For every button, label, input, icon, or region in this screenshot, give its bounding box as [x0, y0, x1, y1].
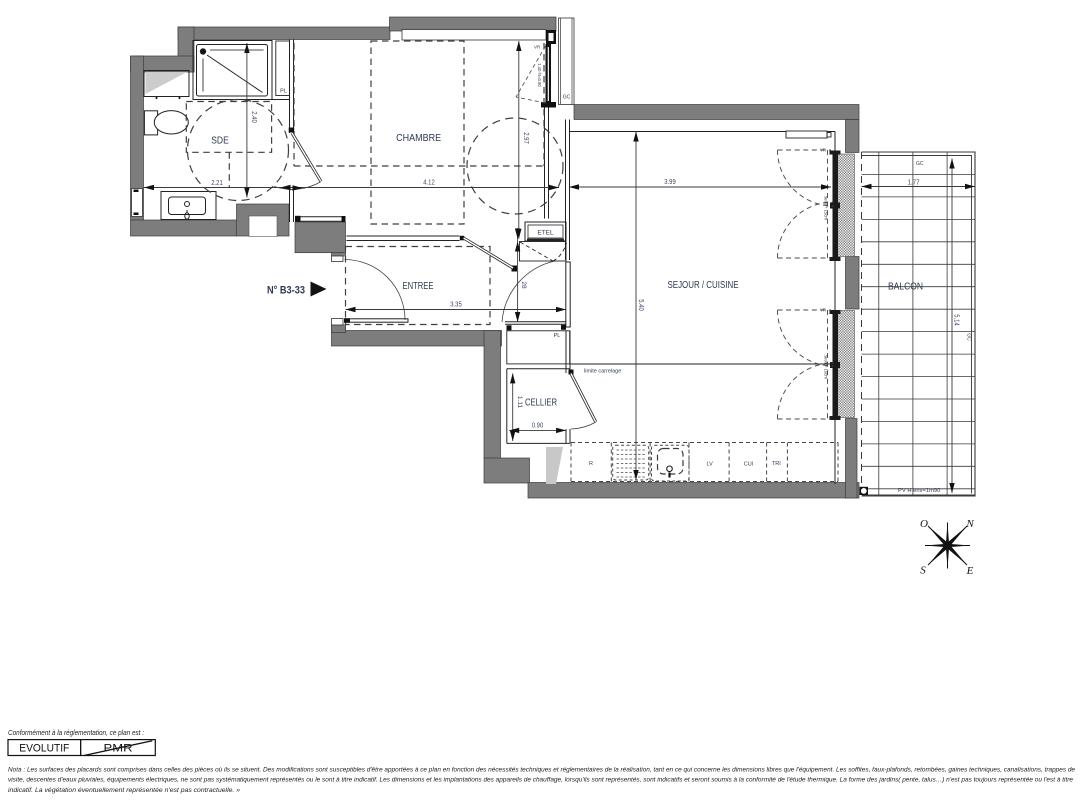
svg-text:1.77: 1.77: [908, 179, 920, 186]
svg-text:limite carrelage: limite carrelage: [584, 369, 621, 375]
svg-text:ENTREE: ENTREE: [403, 281, 434, 292]
svg-text:GC: GC: [966, 333, 972, 341]
svg-text:CUI: CUI: [744, 462, 754, 468]
svg-text:0.90: 0.90: [532, 423, 544, 430]
svg-text:visite, descentes d'eaux pluvi: visite, descentes d'eaux pluviales, équi…: [8, 777, 1073, 784]
svg-text:SEJOUR / CUISINE: SEJOUR / CUISINE: [668, 280, 739, 291]
svg-text:GC: GC: [916, 161, 924, 167]
svg-text:2.97: 2.97: [522, 132, 529, 144]
svg-text:BALCON: BALCON: [888, 282, 923, 293]
svg-text:N: N: [965, 518, 974, 530]
svg-text:5.40: 5.40: [637, 299, 644, 311]
svg-text:2.21: 2.21: [211, 180, 223, 187]
svg-text:CHAMBRE: CHAMBRE: [396, 133, 441, 144]
svg-text:PV H env=1m90: PV H env=1m90: [898, 488, 940, 494]
svg-text:ETEL: ETEL: [537, 229, 554, 236]
svg-text:S: S: [920, 565, 926, 577]
svg-text:VR: VR: [820, 147, 827, 152]
svg-text:Conformément à la réglementati: Conformément à la réglementation, ce pla…: [8, 730, 144, 737]
svg-text:seuil + 15cm: seuil + 15cm: [824, 196, 829, 220]
svg-text:2.40: 2.40: [250, 111, 257, 123]
svg-text:TRI: TRI: [772, 461, 781, 467]
svg-text:1.40 ht=0.90: 1.40 ht=0.90: [537, 63, 542, 87]
svg-text:PL: PL: [554, 333, 561, 339]
svg-text:N° B3-33: N° B3-33: [267, 285, 305, 297]
svg-text:seuil + 15cm: seuil + 15cm: [824, 355, 829, 379]
svg-text:SDE: SDE: [211, 136, 229, 147]
svg-text:E: E: [966, 565, 974, 577]
svg-text:3.35: 3.35: [450, 301, 462, 308]
svg-text:5.14: 5.14: [953, 314, 960, 326]
svg-text:O: O: [920, 518, 928, 530]
svg-text:R: R: [589, 461, 593, 467]
svg-text:LV: LV: [707, 462, 714, 468]
svg-text:PL: PL: [280, 89, 287, 95]
svg-text:28: 28: [520, 281, 527, 289]
svg-text:1.11: 1.11: [516, 396, 523, 409]
svg-text:4.12: 4.12: [423, 179, 435, 186]
svg-text:GC: GC: [563, 95, 571, 101]
svg-text:Nota : Les surfaces des placar: Nota : Les surfaces des placards sont co…: [8, 767, 1075, 774]
svg-text:EVOLUTIF: EVOLUTIF: [19, 743, 69, 755]
svg-text:VR: VR: [534, 44, 541, 49]
svg-text:CELLIER: CELLIER: [525, 398, 557, 409]
svg-text:indicatif. La végétation évent: indicatif. La végétation éventuellement …: [8, 787, 240, 794]
svg-text:3.99: 3.99: [664, 179, 676, 186]
svg-text:VR: VR: [820, 307, 827, 312]
